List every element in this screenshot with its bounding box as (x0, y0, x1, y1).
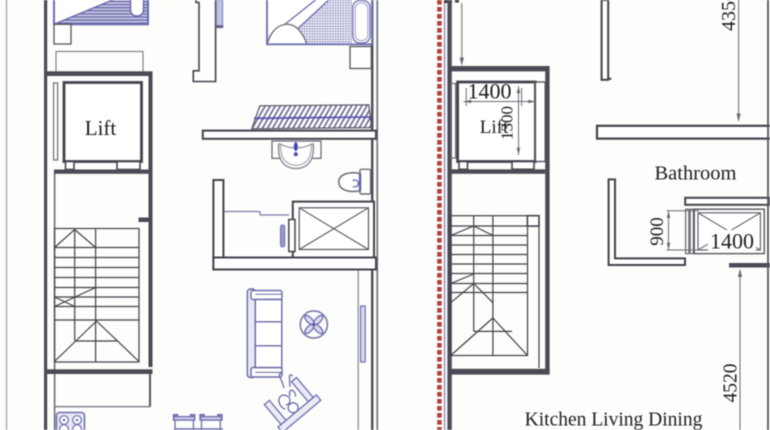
svg-text:1400: 1400 (468, 79, 512, 104)
svg-text:1300: 1300 (498, 106, 517, 140)
svg-text:4520: 4520 (721, 364, 742, 403)
svg-text:Bathroom: Bathroom (655, 163, 737, 185)
svg-text:900: 900 (647, 217, 668, 246)
svg-text:Lift: Lift (85, 116, 117, 140)
svg-text:1400: 1400 (710, 229, 754, 254)
svg-text:4350: 4350 (718, 0, 740, 31)
svg-text:Kitchen Living Dining: Kitchen Living Dining (525, 410, 703, 430)
